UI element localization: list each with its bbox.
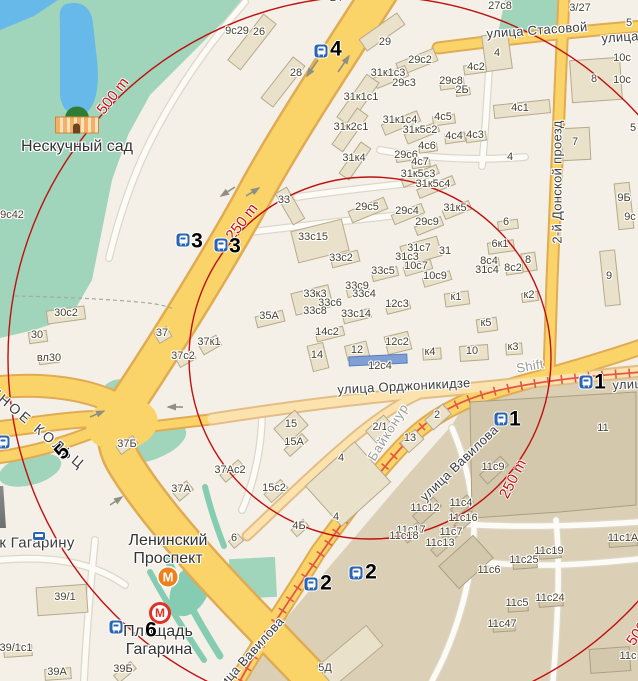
stop-marker-number: 2 xyxy=(365,562,377,583)
bus-window-glyph xyxy=(319,48,324,51)
metro-letter: М xyxy=(163,570,174,585)
bus-window-glyph xyxy=(499,416,504,419)
map-viewport[interactable]: 9с292426282929с227с83/27531к1с329с329с82… xyxy=(0,0,638,681)
bus-stop-icon[interactable] xyxy=(305,578,318,591)
bus-stop-icon[interactable] xyxy=(315,45,328,58)
metro-station-icon-leninsky-prospekt[interactable]: М xyxy=(159,568,178,587)
stop-marker-number: 1 xyxy=(594,372,606,393)
base-map[interactable] xyxy=(0,0,638,681)
stop-marker-number: 4 xyxy=(330,39,342,60)
bus-stop-icon[interactable] xyxy=(215,239,228,252)
bus-stop-icon[interactable] xyxy=(495,413,508,426)
bus-stop-icon[interactable] xyxy=(580,376,593,389)
bus-stop-icon[interactable] xyxy=(350,567,363,580)
bus-stop-icon[interactable] xyxy=(0,436,10,449)
bus-window-glyph xyxy=(354,570,359,573)
stop-marker-number: 3 xyxy=(191,231,203,252)
bus-window-glyph xyxy=(584,379,589,382)
bus-window-glyph xyxy=(219,242,224,245)
stop-marker-number: 3 xyxy=(229,236,241,257)
bus-window-glyph xyxy=(309,581,314,584)
bus-stop-icon[interactable] xyxy=(177,234,190,247)
stop-marker-number: 2 xyxy=(320,573,332,594)
stop-marker-number: 6 xyxy=(145,620,157,641)
stop-marker-number: 1 xyxy=(509,409,521,430)
bus-window-glyph xyxy=(114,624,119,627)
bus-stop-icon[interactable] xyxy=(110,621,123,634)
bus-window-glyph xyxy=(1,439,6,442)
bus-window-glyph xyxy=(181,237,186,240)
